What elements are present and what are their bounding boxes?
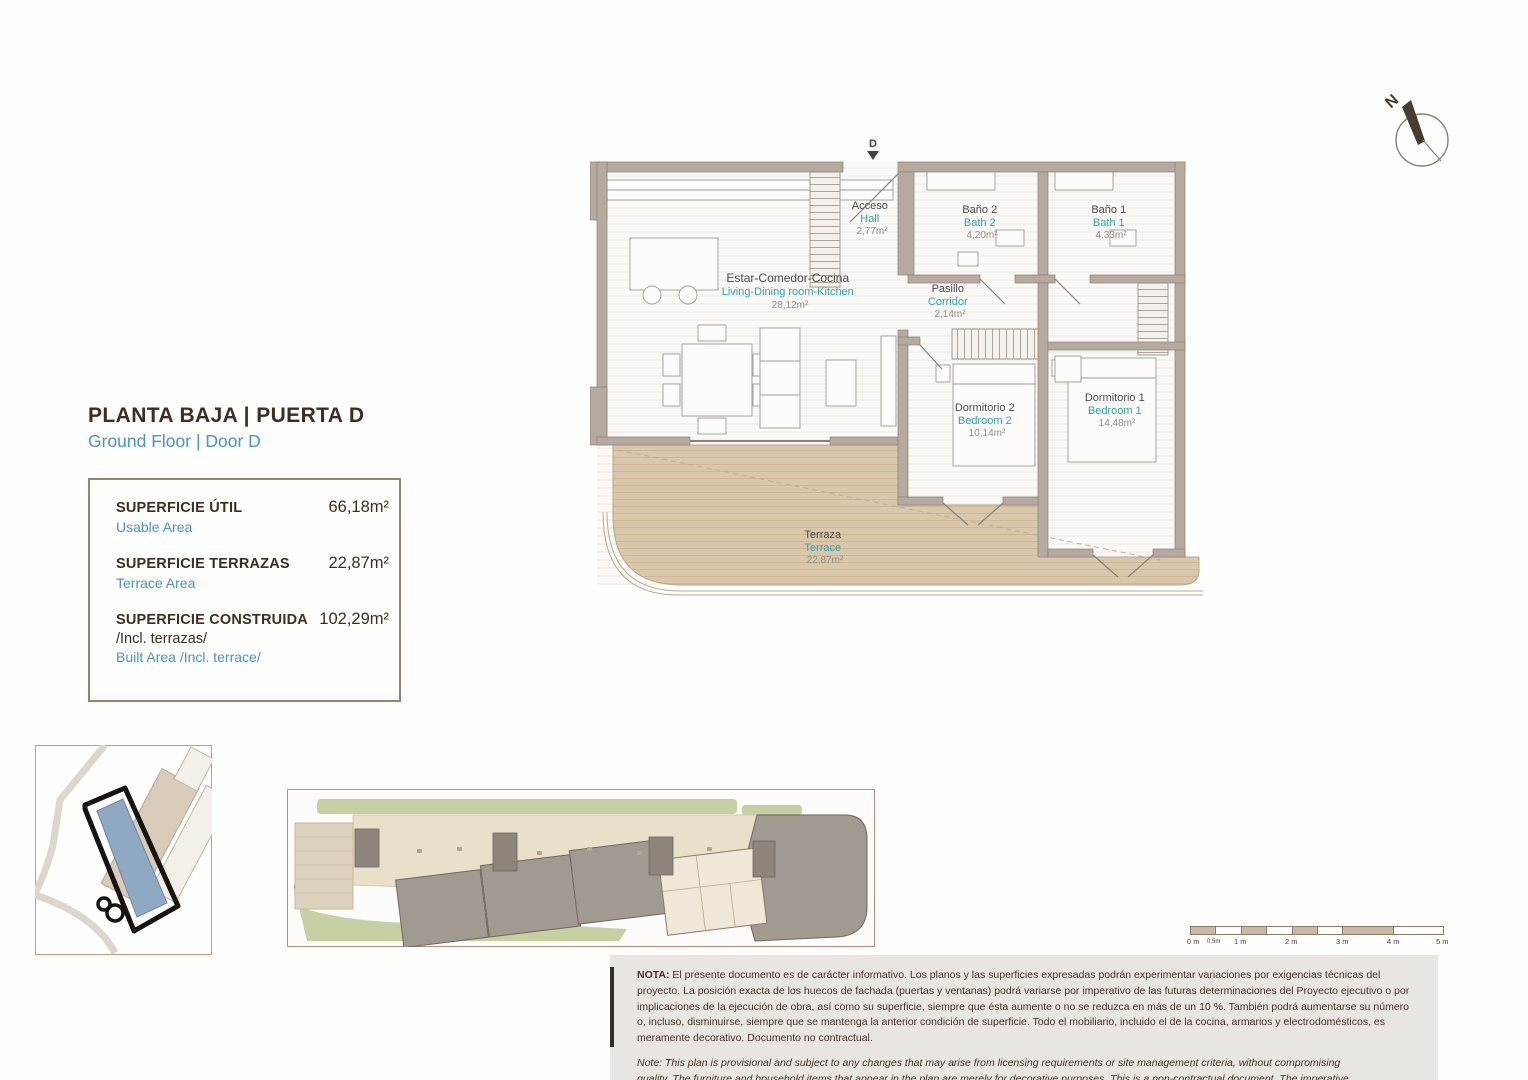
site-plan	[287, 789, 875, 947]
living-label-area: 28,12m²	[772, 300, 809, 311]
bedroom1-label-en: Bedroom 1	[1088, 405, 1142, 417]
compass-n-label: N	[1382, 92, 1402, 112]
room-label-bath1: Baño 1 Bath 1 4,33m²	[1091, 200, 1130, 241]
bath1-label-es: Baño 1	[1091, 204, 1126, 216]
terrace-label-area: 22,87m²	[807, 555, 844, 566]
bedroom2-label-es: Dormitorio 2	[955, 402, 1015, 414]
terrace-area-label: SUPERFICIE TERRAZAS	[116, 556, 290, 572]
room-label-terrace: Terraza Terrace 22,87m²	[804, 525, 845, 566]
page-title: PLANTA BAJA | PUERTA D	[88, 404, 364, 428]
usable-area-row: SUPERFICIE ÚTIL 66,18m² Usable Area	[116, 498, 389, 535]
floor-plan-sheet: N	[0, 0, 1528, 1080]
bath2-label-area: 4,20m²	[966, 230, 998, 241]
built-area-row: SUPERFICIE CONSTRUIDA 102,29m² /Incl. te…	[116, 610, 389, 665]
bedroom1-label-es: Dormitorio 1	[1085, 392, 1145, 404]
surface-areas-box: SUPERFICIE ÚTIL 66,18m² Usable Area SUPE…	[88, 478, 401, 702]
site-highlighted-unit	[658, 848, 767, 936]
scale-label-2m: 2 m	[1285, 937, 1298, 946]
entrance-marker: D	[867, 138, 879, 160]
notes-accent-bar	[610, 967, 614, 1047]
legal-notes: NOTA: El presente documento es de caráct…	[610, 955, 1438, 1080]
compass-needle	[1402, 100, 1425, 145]
scale-bar-segments	[1190, 926, 1444, 935]
living-label-en: Living-Dining room-Kitchen	[722, 286, 854, 298]
entrance-letter: D	[869, 138, 877, 150]
terrace-area-sublabel: Terrace Area	[116, 575, 389, 591]
scale-label-5m: 5 m	[1436, 937, 1449, 946]
bedroom2-label-en: Bedroom 2	[958, 415, 1012, 427]
terrace-area-row: SUPERFICIE TERRAZAS 22,87m² Terrace Area	[116, 554, 389, 591]
page-subtitle: Ground Floor | Door D	[88, 431, 261, 452]
scale-label-3m: 3 m	[1336, 937, 1349, 946]
room-label-bath2: Baño 2 Bath 2 4,20m²	[962, 200, 1001, 241]
scale-label-4m: 4 m	[1387, 937, 1400, 946]
corridor-label-area: 2,14m²	[934, 309, 966, 320]
terrace-label-es: Terraza	[804, 529, 842, 541]
built-area-value: 102,29m²	[319, 610, 389, 629]
usable-area-value: 66,18m²	[328, 498, 389, 517]
scale-bar: 0 m 0,5m 1 m 2 m 3 m 4 m 5 m	[1190, 926, 1444, 952]
bath1-label-en: Bath 1	[1093, 217, 1125, 229]
built-area-extra: /Incl. terrazas/	[116, 631, 389, 647]
corridor-label-es: Pasillo	[932, 283, 964, 295]
note-spanish: NOTA: El presente documento es de caráct…	[637, 968, 1420, 1047]
bath2-label-en: Bath 2	[964, 217, 996, 229]
built-area-sublabel: Built Area /Incl. terrace/	[116, 649, 389, 665]
bedroom1-label-area: 14,48m²	[1099, 418, 1136, 429]
terrace-area-value: 22,87m²	[328, 554, 389, 573]
floor-plan: D Estar-Comedor-Cocina Living-Dining roo…	[590, 132, 1220, 602]
scale-bar-labels: 0 m 0,5m 1 m 2 m 3 m 4 m 5 m	[1190, 935, 1444, 947]
living-label-es: Estar-Comedor-Cocina	[726, 271, 849, 285]
built-area-label: SUPERFICIE CONSTRUIDA	[116, 612, 308, 628]
corridor-label-en: Corridor	[928, 296, 968, 308]
bath2-label-es: Baño 2	[962, 204, 997, 216]
usable-area-sublabel: Usable Area	[116, 519, 389, 535]
north-arrow: N	[1378, 82, 1468, 182]
entrance-arrow-icon	[867, 151, 879, 160]
room-label-corridor: Pasillo Corridor 2,14m²	[928, 279, 972, 320]
location-map	[35, 745, 212, 955]
scale-label-1m: 1 m	[1234, 937, 1247, 946]
note-english: Note: This plan is provisional and subje…	[637, 1056, 1420, 1080]
scale-label-05m: 0,5m	[1207, 939, 1220, 945]
bath1-label-area: 4,33m²	[1095, 230, 1127, 241]
bedroom2-label-area: 10,14m²	[969, 428, 1006, 439]
hall-label-area: 2,77m²	[856, 226, 888, 237]
stairs-hatch	[810, 172, 840, 287]
hall-label-es: Acceso	[852, 200, 888, 212]
terrace-label-en: Terrace	[804, 542, 841, 554]
note-spanish-label: NOTA:	[637, 969, 669, 981]
hall-label-en: Hall	[860, 213, 879, 225]
site-deck	[295, 823, 353, 909]
compass-needle-tail	[1423, 140, 1441, 161]
usable-area-label: SUPERFICIE ÚTIL	[116, 500, 242, 516]
note-spanish-text: El presente documento es de carácter inf…	[637, 969, 1409, 1044]
scale-label-0m: 0 m	[1187, 937, 1200, 946]
